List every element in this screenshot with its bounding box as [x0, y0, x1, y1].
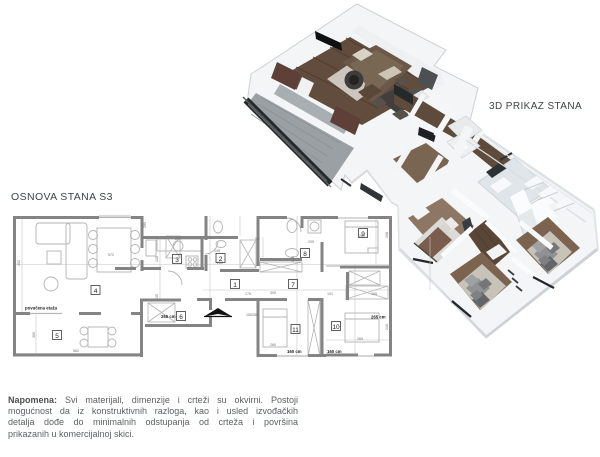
svg-text:260: 260 [359, 234, 365, 238]
svg-text:150: 150 [246, 313, 252, 317]
svg-text:572: 572 [108, 253, 114, 257]
svg-text:160 cm: 160 cm [287, 349, 302, 354]
svg-text:260: 260 [217, 261, 223, 265]
svg-text:562: 562 [73, 349, 79, 353]
svg-text:90: 90 [255, 237, 259, 241]
svg-text:10: 10 [332, 324, 340, 331]
svg-text:135: 135 [155, 294, 159, 300]
svg-text:452: 452 [17, 260, 21, 266]
svg-text:7: 7 [291, 282, 295, 289]
svg-text:170: 170 [245, 292, 251, 296]
svg-text:5: 5 [55, 333, 59, 340]
svg-text:265: 265 [357, 337, 363, 341]
svg-text:200: 200 [175, 237, 181, 241]
svg-text:390: 390 [143, 222, 147, 228]
svg-text:11: 11 [292, 327, 299, 334]
svg-text:165: 165 [371, 292, 377, 296]
svg-text:265 cm: 265 cm [371, 315, 386, 320]
svg-text:300: 300 [270, 291, 276, 295]
svg-text:145: 145 [214, 249, 220, 253]
svg-text:1: 1 [233, 282, 237, 289]
svg-text:300: 300 [32, 332, 36, 338]
svg-text:101: 101 [327, 292, 333, 296]
svg-text:4: 4 [94, 288, 98, 295]
svg-text:3: 3 [175, 257, 179, 264]
svg-text:povučena etaža: povučena etaža [25, 306, 58, 311]
svg-text:265 cm: 265 cm [161, 314, 176, 319]
svg-text:135: 135 [291, 256, 295, 262]
svg-text:205: 205 [308, 240, 314, 244]
svg-text:265: 265 [252, 313, 258, 317]
svg-text:260: 260 [270, 343, 276, 347]
svg-text:216: 216 [385, 324, 389, 330]
svg-text:208: 208 [385, 232, 389, 238]
svg-text:160 cm: 160 cm [327, 349, 342, 354]
svg-text:8: 8 [303, 251, 307, 258]
svg-text:135: 135 [155, 256, 159, 262]
svg-text:6: 6 [179, 314, 183, 321]
